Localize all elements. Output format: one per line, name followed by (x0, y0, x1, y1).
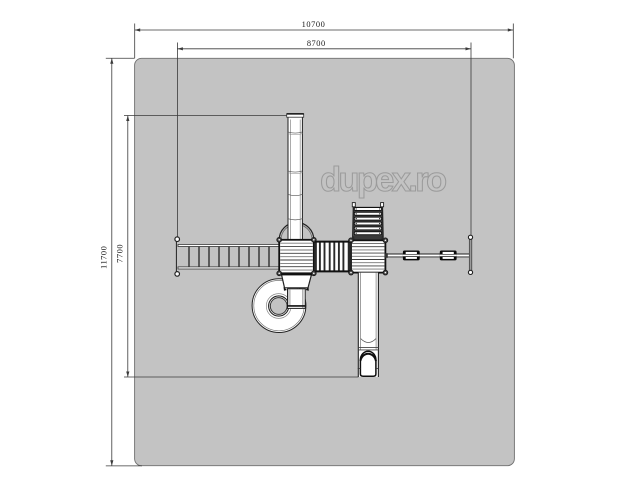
svg-text:7700: 7700 (116, 244, 125, 263)
svg-text:dupex.ro: dupex.ro (320, 161, 446, 199)
svg-text:11700: 11700 (100, 246, 109, 269)
svg-text:10700: 10700 (302, 20, 326, 29)
svg-text:8700: 8700 (307, 39, 326, 48)
